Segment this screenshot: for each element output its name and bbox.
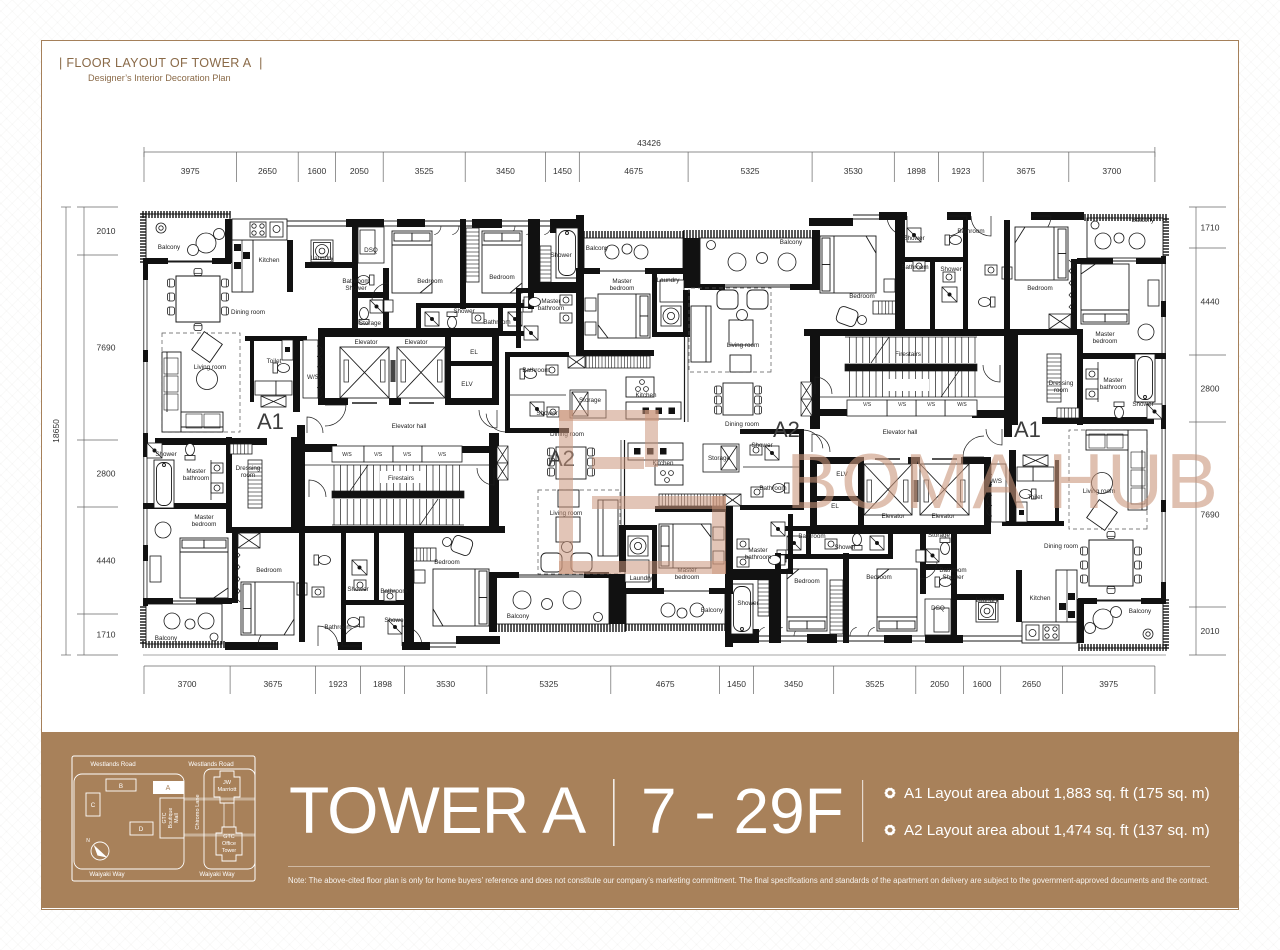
svg-text:Bathroom: Bathroom [901,264,928,271]
svg-text:3975: 3975 [1099,679,1118,689]
svg-text:Dining room: Dining room [1044,543,1078,550]
svg-text:Master: Master [748,547,767,554]
svg-text:3675: 3675 [263,679,282,689]
svg-text:Bathroom: Bathroom [522,367,549,374]
svg-text:Balcony: Balcony [1132,217,1155,224]
svg-text:Shower: Shower [940,266,961,273]
svg-text:JW: JW [223,780,232,786]
svg-text:Shower: Shower [942,574,963,581]
svg-text:Master: Master [194,514,213,521]
svg-text:Bathroom: Bathroom [939,567,966,574]
svg-text:Bedroom: Bedroom [417,278,443,285]
svg-text:GTC: GTC [223,834,234,840]
svg-text:Firestairs: Firestairs [388,475,414,482]
svg-text:Shower: Shower [345,285,366,292]
svg-text:bedroom: bedroom [610,285,635,292]
svg-text:Kitchen: Kitchen [635,392,657,399]
svg-text:Master: Master [541,298,560,305]
svg-text:Shower: Shower [453,308,474,315]
svg-text:Bedroom: Bedroom [434,559,460,566]
svg-text:Elevator: Elevator [404,339,427,346]
svg-text:Bathroom: Bathroom [380,588,407,595]
svg-text:3525: 3525 [865,679,884,689]
svg-text:2050: 2050 [930,679,949,689]
svg-text:EL: EL [470,349,478,356]
svg-text:1450: 1450 [727,679,746,689]
svg-text:Kitchen: Kitchen [258,257,280,264]
svg-text:1450: 1450 [553,166,572,176]
svg-text:Mall: Mall [174,813,180,823]
svg-text:Bedroom: Bedroom [794,578,820,585]
svg-text:A1 Layout area about 1,883 sq.: A1 Layout area about 1,883 sq. ft (175 s… [904,785,1210,802]
svg-text:Bedroom: Bedroom [866,574,892,581]
svg-text:Balcony: Balcony [701,607,724,614]
svg-text:W/S: W/S [307,374,319,381]
svg-text:7 - 29F: 7 - 29F [641,775,844,847]
svg-text:Shower: Shower [903,235,924,242]
svg-text:Elevator hall: Elevator hall [883,429,918,436]
svg-text:1600: 1600 [307,166,326,176]
svg-text:V/S: V/S [374,452,383,458]
svg-text:Shower: Shower [1132,401,1153,408]
svg-text:Balcony: Balcony [586,245,609,252]
svg-text:Bathroom: Bathroom [957,228,984,235]
svg-text:3530: 3530 [844,166,863,176]
svg-text:1600: 1600 [973,679,992,689]
svg-text:Storage: Storage [928,532,951,539]
svg-text:4675: 4675 [656,679,675,689]
svg-text:4675: 4675 [624,166,643,176]
svg-text:Office: Office [222,841,236,847]
svg-text:Balcony: Balcony [1129,608,1152,615]
svg-text:W/S: W/S [342,452,352,458]
svg-text:Westlands Road: Westlands Road [188,761,234,768]
svg-text:3700: 3700 [178,679,197,689]
svg-text:N: N [86,838,90,844]
svg-text:| FLOOR LAYOUT OF TOWER A |: | FLOOR LAYOUT OF TOWER A | [59,56,263,70]
svg-text:3675: 3675 [1017,166,1036,176]
svg-text:A2 Layout area about 1,474 sq.: A2 Layout area about 1,474 sq. ft (137 s… [904,822,1210,839]
svg-text:room: room [1054,387,1068,394]
svg-text:Master: Master [1103,377,1122,384]
svg-text:Shower: Shower [155,451,176,458]
svg-text:Waiyaki Way: Waiyaki Way [89,871,125,878]
svg-text:Dressing: Dressing [236,465,261,472]
svg-text:5325: 5325 [741,166,760,176]
svg-text:2800: 2800 [1201,384,1220,394]
svg-text:Shower: Shower [751,442,772,449]
svg-text:1923: 1923 [951,166,970,176]
svg-text:Shower: Shower [550,252,571,259]
svg-text:Shower: Shower [737,600,758,607]
svg-text:DSQ: DSQ [364,247,378,254]
svg-text:Firestairs: Firestairs [895,351,921,358]
svg-text:Shower: Shower [384,617,405,624]
svg-text:5325: 5325 [539,679,558,689]
svg-text:DSQ: DSQ [931,605,945,612]
svg-text:Elevator hall: Elevator hall [392,423,427,430]
svg-text:Shower: Shower [834,544,855,551]
svg-text:bedroom: bedroom [675,574,700,581]
svg-text:3530: 3530 [436,679,455,689]
svg-text:4440: 4440 [1201,297,1220,307]
svg-text:V/S: V/S [403,452,412,458]
svg-text:Bathroom: Bathroom [759,485,786,492]
svg-text:bathroom: bathroom [1100,384,1127,391]
svg-text:Balcony: Balcony [155,635,178,642]
svg-text:3525: 3525 [415,166,434,176]
svg-text:V/S: V/S [438,452,447,458]
svg-text:2650: 2650 [1022,679,1041,689]
svg-text:Storage: Storage [579,397,602,404]
svg-text:B: B [119,783,123,790]
svg-text:Bathroom: Bathroom [324,624,351,631]
svg-text:3700: 3700 [1102,166,1121,176]
svg-text:Storage: Storage [359,320,382,327]
svg-text:Laundry: Laundry [976,597,1000,604]
svg-text:V/S: V/S [863,402,872,408]
svg-text:V/S: V/S [898,402,907,408]
svg-text:1898: 1898 [373,679,392,689]
svg-text:Master: Master [612,278,631,285]
svg-text:A1: A1 [257,409,284,434]
svg-text:Shower: Shower [536,410,557,417]
svg-text:bedroom: bedroom [1093,338,1118,345]
svg-text:1710: 1710 [97,630,116,640]
svg-text:Designer’s Interior Decoration: Designer’s Interior Decoration Plan [88,73,231,83]
svg-text:C: C [91,802,96,809]
svg-text:Bathroom: Bathroom [483,319,510,326]
svg-text:Master: Master [1095,331,1114,338]
svg-text:7690: 7690 [97,343,116,353]
svg-text:Balcony: Balcony [507,613,530,620]
svg-text:1898: 1898 [907,166,926,176]
svg-text:4440: 4440 [97,556,116,566]
svg-text:bathroom: bathroom [745,554,772,561]
svg-text:A: A [166,785,171,792]
svg-text:3450: 3450 [784,679,803,689]
svg-text:Master: Master [186,468,205,475]
svg-text:room: room [241,472,255,479]
svg-text:Dining room: Dining room [725,421,759,428]
svg-text:ELV: ELV [461,381,473,388]
svg-text:43426: 43426 [637,138,661,148]
svg-text:2650: 2650 [258,166,277,176]
svg-text:Shower: Shower [347,586,368,593]
svg-text:Dressing: Dressing [1049,380,1074,387]
svg-text:Balcony: Balcony [780,239,803,246]
svg-text:Waiyaki Way: Waiyaki Way [199,871,235,878]
svg-text:1710: 1710 [1201,223,1220,233]
svg-text:3975: 3975 [181,166,200,176]
svg-text:Storage: Storage [708,455,731,462]
svg-text:Bedroom: Bedroom [1027,285,1053,292]
svg-text:V/S: V/S [927,402,936,408]
svg-text:Tower: Tower [222,848,237,854]
svg-text:3450: 3450 [496,166,515,176]
svg-text:2050: 2050 [350,166,369,176]
svg-text:Dining room: Dining room [231,309,265,316]
svg-text:bathroom: bathroom [538,305,565,312]
svg-text:W/S: W/S [957,402,967,408]
svg-text:Living room: Living room [727,342,760,349]
svg-text:Bedroom: Bedroom [256,567,282,574]
svg-text:Chiromo Lane: Chiromo Lane [195,794,201,829]
svg-text:bedroom: bedroom [192,521,217,528]
svg-text:Bathroom: Bathroom [342,278,369,285]
svg-text:2010: 2010 [97,226,116,236]
svg-text:Kitchen: Kitchen [1029,595,1051,602]
svg-text:Note: The above-cited floor pl: Note: The above-cited floor plan is only… [288,876,1209,885]
svg-text:Bathroom: Bathroom [798,533,825,540]
svg-text:Toilet: Toilet [267,358,282,365]
svg-text:TOWER A: TOWER A [289,773,586,847]
svg-text:D: D [139,826,144,833]
svg-text:BOMA HUB: BOMA HUB [786,437,1221,525]
svg-text:Elevator: Elevator [354,339,377,346]
svg-text:18650: 18650 [51,419,61,443]
svg-text:Laundry: Laundry [630,575,654,582]
svg-text:Bedroom: Bedroom [489,274,515,281]
svg-text:Westlands Road: Westlands Road [90,761,136,768]
svg-text:2010: 2010 [1201,626,1220,636]
svg-text:Balcony: Balcony [158,244,181,251]
svg-text:2800: 2800 [97,469,116,479]
svg-text:Laundry: Laundry [657,277,681,284]
svg-text:Bedroom: Bedroom [849,293,875,300]
svg-text:1923: 1923 [329,679,348,689]
svg-text:Laundry: Laundry [311,255,335,262]
svg-text:bathroom: bathroom [183,475,210,482]
svg-text:Marriott: Marriott [218,787,237,793]
svg-text:Living room: Living room [194,364,227,371]
